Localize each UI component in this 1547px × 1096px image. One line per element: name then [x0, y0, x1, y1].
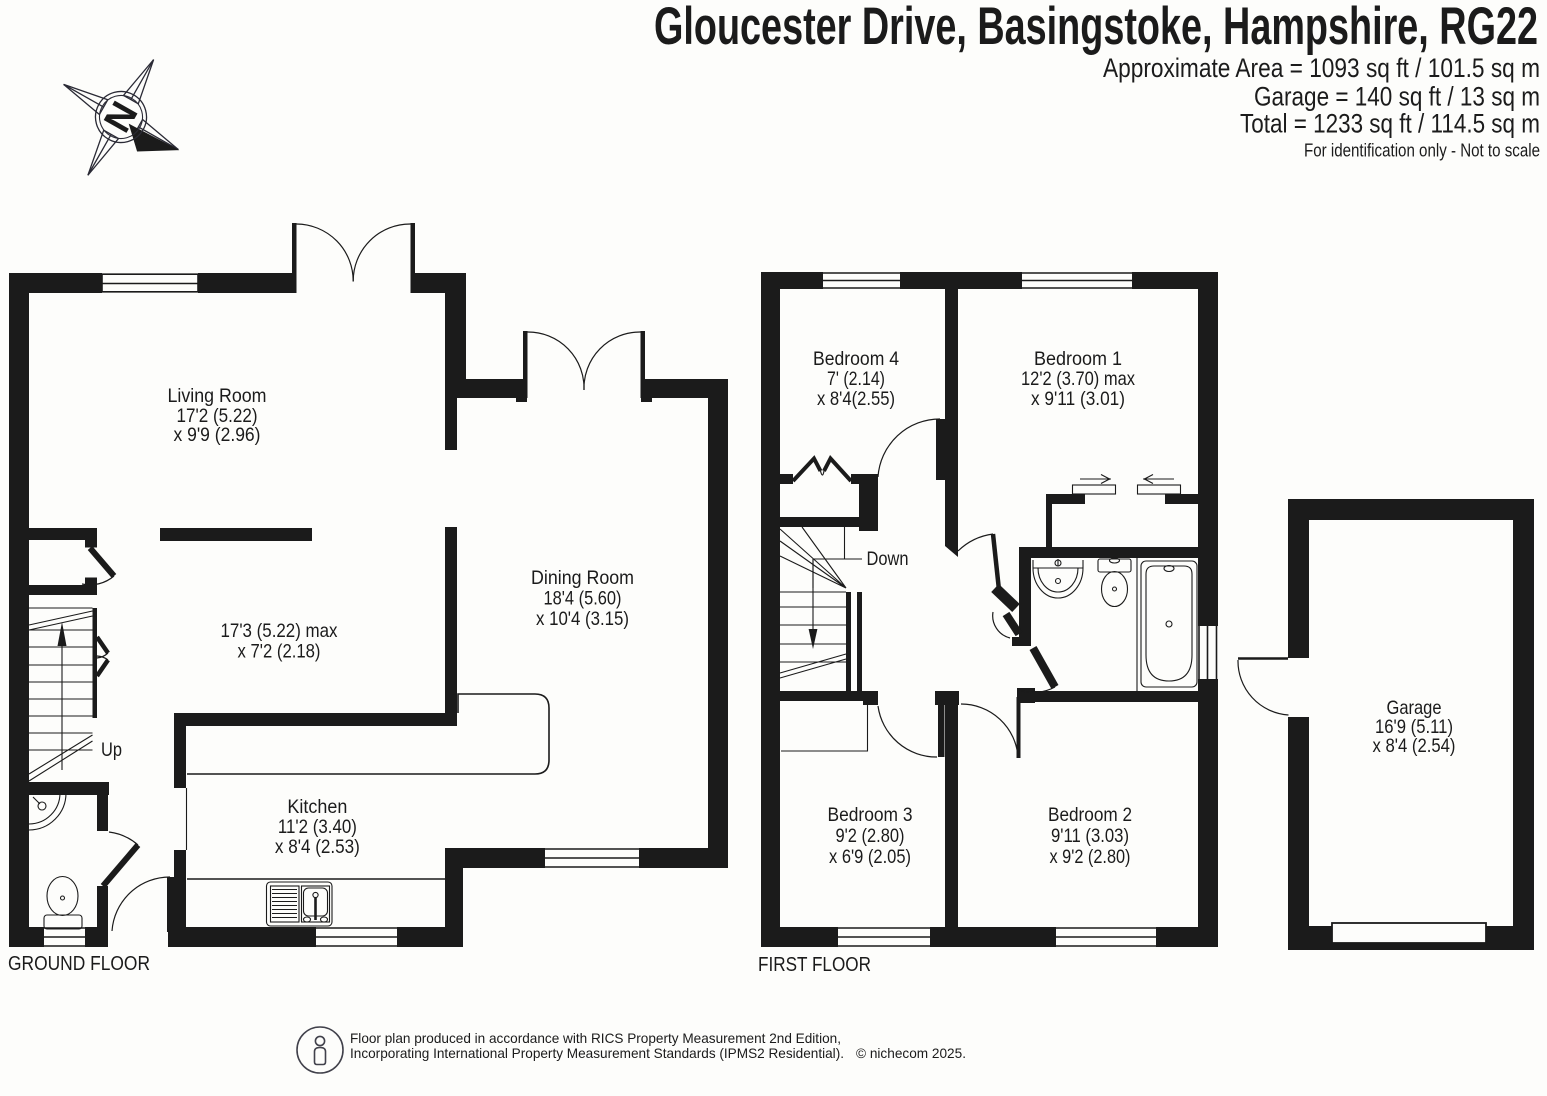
svg-text:Bedroom 4: Bedroom 4	[813, 348, 899, 370]
svg-text:Gloucester Drive, Basingstoke,: Gloucester Drive, Basingstoke, Hampshire…	[654, 0, 1538, 56]
svg-text:© nichecom 2025.: © nichecom 2025.	[856, 1045, 966, 1061]
svg-text:x 6'9 (2.05): x 6'9 (2.05)	[829, 846, 911, 868]
svg-text:Total = 1233 sq ft / 114.5 sq: Total = 1233 sq ft / 114.5 sq m	[1240, 109, 1540, 139]
svg-text:Kitchen: Kitchen	[287, 796, 347, 818]
svg-text:x 8'4 (2.53): x 8'4 (2.53)	[275, 836, 360, 858]
svg-text:Living Room: Living Room	[168, 385, 267, 407]
svg-text:11'2 (3.40): 11'2 (3.40)	[278, 816, 357, 838]
svg-text:x 8'4(2.55): x 8'4(2.55)	[817, 388, 895, 410]
svg-text:x 10'4 (3.15): x 10'4 (3.15)	[536, 608, 629, 630]
svg-text:7' (2.14): 7' (2.14)	[827, 368, 885, 390]
svg-text:Dining Room: Dining Room	[531, 567, 634, 589]
svg-text:For identification only - Not: For identification only - Not to scale	[1304, 141, 1540, 161]
svg-text:Down: Down	[867, 549, 909, 570]
svg-text:9'11 (3.03): 9'11 (3.03)	[1051, 825, 1129, 847]
svg-text:12'2 (3.70) max: 12'2 (3.70) max	[1021, 368, 1135, 390]
svg-text:x 9'11 (3.01): x 9'11 (3.01)	[1031, 388, 1125, 410]
svg-text:9'2 (2.80): 9'2 (2.80)	[836, 825, 905, 847]
svg-text:Floor plan produced in accorda: Floor plan produced in accordance with R…	[350, 1030, 841, 1046]
svg-text:18'4 (5.60): 18'4 (5.60)	[544, 588, 622, 610]
svg-text:x 7'2 (2.18): x 7'2 (2.18)	[238, 641, 321, 663]
svg-text:Approximate Area = 1093 sq ft: Approximate Area = 1093 sq ft / 101.5 sq…	[1103, 53, 1540, 83]
svg-text:FIRST FLOOR: FIRST FLOOR	[758, 954, 871, 976]
svg-text:GROUND FLOOR: GROUND FLOOR	[8, 953, 150, 975]
svg-text:x 9'2 (2.80): x 9'2 (2.80)	[1050, 846, 1131, 868]
svg-text:Bedroom 1: Bedroom 1	[1034, 348, 1122, 370]
svg-text:Garage = 140 sq ft / 13 sq m: Garage = 140 sq ft / 13 sq m	[1254, 82, 1540, 112]
svg-text:x 9'9 (2.96): x 9'9 (2.96)	[174, 424, 261, 446]
svg-text:Up: Up	[101, 740, 122, 761]
svg-text:Incorporating International Pr: Incorporating International Property Mea…	[350, 1045, 844, 1061]
svg-text:Bedroom 3: Bedroom 3	[828, 804, 913, 826]
svg-text:x 8'4 (2.54): x 8'4 (2.54)	[1373, 735, 1456, 757]
svg-text:Bedroom 2: Bedroom 2	[1048, 804, 1132, 826]
svg-text:17'3 (5.22) max: 17'3 (5.22) max	[221, 620, 338, 642]
